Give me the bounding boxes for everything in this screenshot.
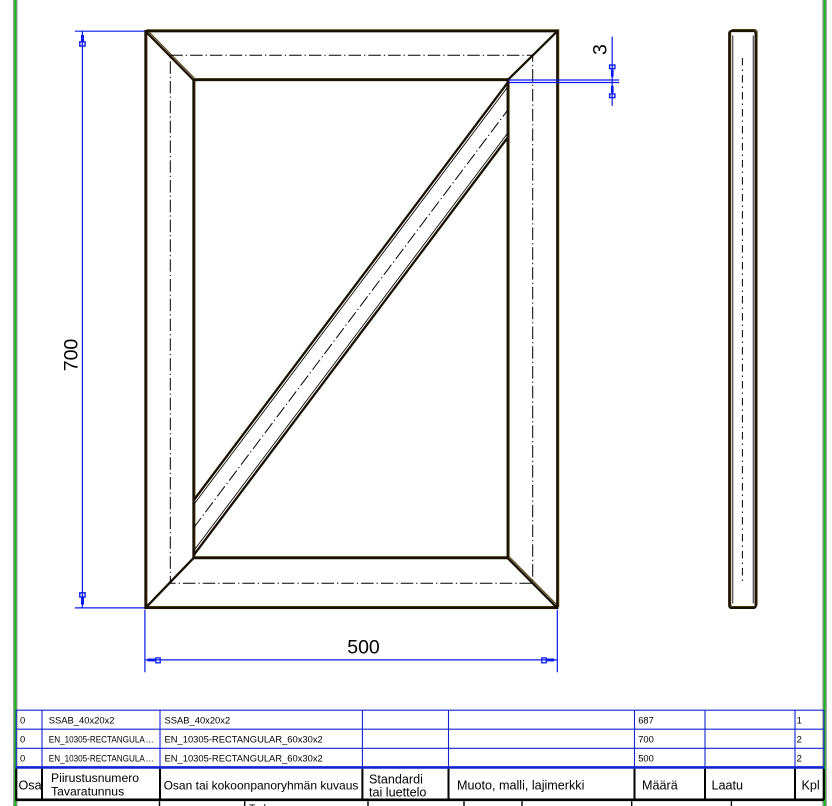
svg-text:2: 2 [797, 734, 802, 745]
svg-text:687: 687 [638, 715, 654, 726]
svg-text:0: 0 [20, 734, 25, 745]
svg-text:1: 1 [797, 715, 802, 726]
svg-text:Osan tai kokoonpanoryhmän kuva: Osan tai kokoonpanoryhmän kuvaus [164, 779, 359, 793]
svg-text:tai luettelo: tai luettelo [369, 786, 426, 800]
svg-text:...: ... [146, 734, 154, 745]
svg-text:3: 3 [590, 44, 612, 55]
svg-text:Laatu: Laatu [712, 779, 744, 793]
svg-text:EN_10305-RECTANGULA: EN_10305-RECTANGULA [49, 734, 146, 745]
svg-text:700: 700 [638, 734, 654, 745]
svg-text:700: 700 [60, 339, 82, 372]
svg-text:0: 0 [20, 753, 25, 764]
svg-text:...: ... [146, 753, 154, 764]
svg-text:SSAB_40x20x2: SSAB_40x20x2 [165, 715, 231, 726]
svg-text:Tark.: Tark. [249, 803, 272, 806]
svg-text:2: 2 [797, 753, 802, 764]
svg-text:EN_10305-RECTANGULAR_60x30x2: EN_10305-RECTANGULAR_60x30x2 [165, 753, 323, 764]
svg-text:Kpl: Kpl [802, 779, 820, 793]
svg-text:0: 0 [20, 715, 25, 726]
svg-text:SSAB_40x20x2: SSAB_40x20x2 [49, 715, 115, 726]
svg-text:Tavaratunnus: Tavaratunnus [51, 785, 124, 799]
svg-text:Muoto, malli, lajimerkki: Muoto, malli, lajimerkki [457, 779, 584, 793]
svg-text:500: 500 [638, 753, 654, 764]
svg-text:Määrä: Määrä [642, 779, 678, 793]
svg-text:500: 500 [347, 637, 380, 659]
svg-text:EN_10305-RECTANGULA: EN_10305-RECTANGULA [49, 753, 146, 764]
svg-text:EN_10305-RECTANGULAR_60x30x2: EN_10305-RECTANGULAR_60x30x2 [165, 734, 323, 745]
svg-text:Osa: Osa [19, 779, 42, 793]
svg-text:Standardi: Standardi [369, 773, 423, 787]
svg-text:Piirustusnumero: Piirustusnumero [51, 771, 139, 785]
